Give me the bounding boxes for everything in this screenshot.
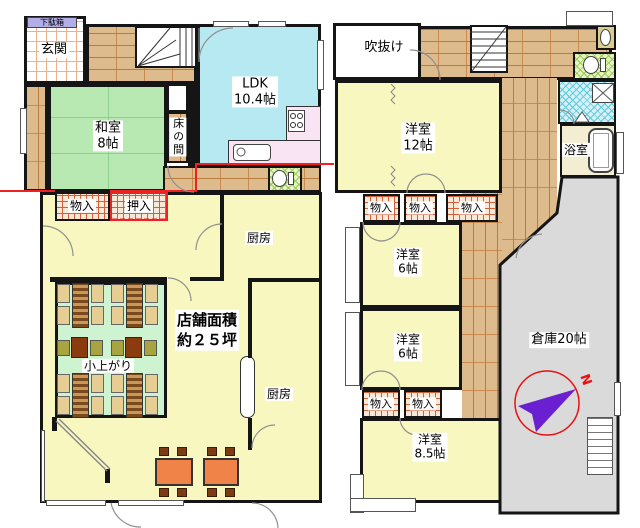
cushion [57,396,70,415]
shop-area-label: 店舗面積約２５坪 [175,310,239,351]
bay-window [345,312,360,386]
low-table [72,283,89,328]
bay-window [566,11,613,26]
monoiri-label: 物入 [459,201,485,214]
window [46,500,106,506]
monoiri-label: 物入 [368,397,394,410]
wall [190,277,224,281]
genkan-label: 玄関 [39,42,69,58]
bedroom-12-label: 洋室12帖 [401,122,435,153]
chair [159,447,169,456]
cushion [91,396,104,415]
corner-opening [41,430,45,502]
toilet-tank-icon-2f [600,58,606,72]
bedroom-6a-label: 洋室6帖 [394,248,422,277]
compass-north-label: N [575,370,595,389]
engawa-corridor [24,84,48,192]
low-table [72,373,89,418]
stove-icon [288,110,305,132]
low-table [125,337,142,358]
stairs-1f [135,26,197,68]
monoiri-label: 物入 [410,397,436,410]
cushion [90,340,103,356]
tokonoma-label: 床の間 [169,118,186,157]
chair [177,488,187,497]
washbasin-icon [600,29,611,46]
window [614,382,621,416]
sink-icon [233,144,271,161]
cushion [145,396,158,415]
wall [105,469,110,483]
corridor-2f [502,78,557,215]
bedroom-6b-label: 洋室6帖 [394,333,422,362]
floorplan-canvas: 下駄箱 玄関 LDK10.4帖 和室8帖 床の間 物入 押入 厨房 店舗面積約２… [0,0,640,528]
wall [52,417,57,431]
porch-step [350,498,416,512]
cushion [111,306,124,325]
toilet-tank-icon-1f [288,172,294,185]
cushion [111,340,124,356]
wall [50,277,167,282]
window [317,40,324,90]
toilet-icon-1f [272,170,287,187]
fukinuke-label: 吹抜け [362,40,405,56]
kitchen-lower-label: 厨房 [265,387,293,401]
wall [248,418,252,450]
window [258,21,286,27]
cushion [111,374,124,393]
warehouse-stairs [587,417,613,475]
window [118,500,184,506]
chair [177,447,187,456]
monoiri-label: 物入 [407,201,433,214]
low-table [126,283,143,328]
bathtub-inner [593,133,609,168]
cushion [91,284,104,303]
stairs-2f [470,25,508,73]
kitchen-upper-label: 厨房 [245,231,273,245]
toilet-icon-2f [583,56,599,74]
wall [220,192,224,278]
wall [248,278,322,282]
shoe-cabinet-label: 下駄箱 [40,18,64,28]
cushion [91,306,104,325]
cushion [145,284,158,303]
window [616,132,624,174]
chair [159,488,169,497]
dining-table [203,458,239,486]
chair [207,488,217,497]
cushion [145,306,158,325]
cushion [91,374,104,393]
chair [225,447,235,456]
koagari-label: 小上がり [82,359,134,373]
compass-circle [515,371,579,435]
corridor-2f-lower [462,193,502,418]
washitsu-label: 和室8帖 [93,120,123,151]
bay-window [345,227,360,303]
cushion [111,284,124,303]
corridor-2f-diagonal [502,215,557,267]
window [20,108,27,154]
window [213,21,249,27]
cushion [57,306,70,325]
bedroom-85-label: 洋室8.5帖 [412,433,447,462]
monoiri-label: 物入 [368,201,394,214]
low-table [71,337,88,358]
cushion [145,374,158,393]
cushion [111,396,124,415]
ldk-label: LDK10.4帖 [232,76,278,107]
cushion [57,284,70,303]
compass-arrow-icon [518,389,576,432]
cushion [144,340,157,356]
closet-above-tokonoma [167,84,188,112]
warehouse-label: 倉庫20帖 [529,332,589,348]
cushion [57,340,70,356]
bathtub-icon [588,128,614,173]
chair [225,488,235,497]
chair [207,447,217,456]
wall [188,82,197,166]
service-counter [240,356,255,418]
monoiri-1f-label: 物入 [68,199,96,213]
dining-table [155,458,193,486]
oshiire-label: 押入 [125,199,153,213]
cushion [57,374,70,393]
washing-machine-icon [592,83,614,103]
bathroom-label: 浴室 [562,143,590,157]
wall [248,282,252,358]
low-table [126,373,143,418]
